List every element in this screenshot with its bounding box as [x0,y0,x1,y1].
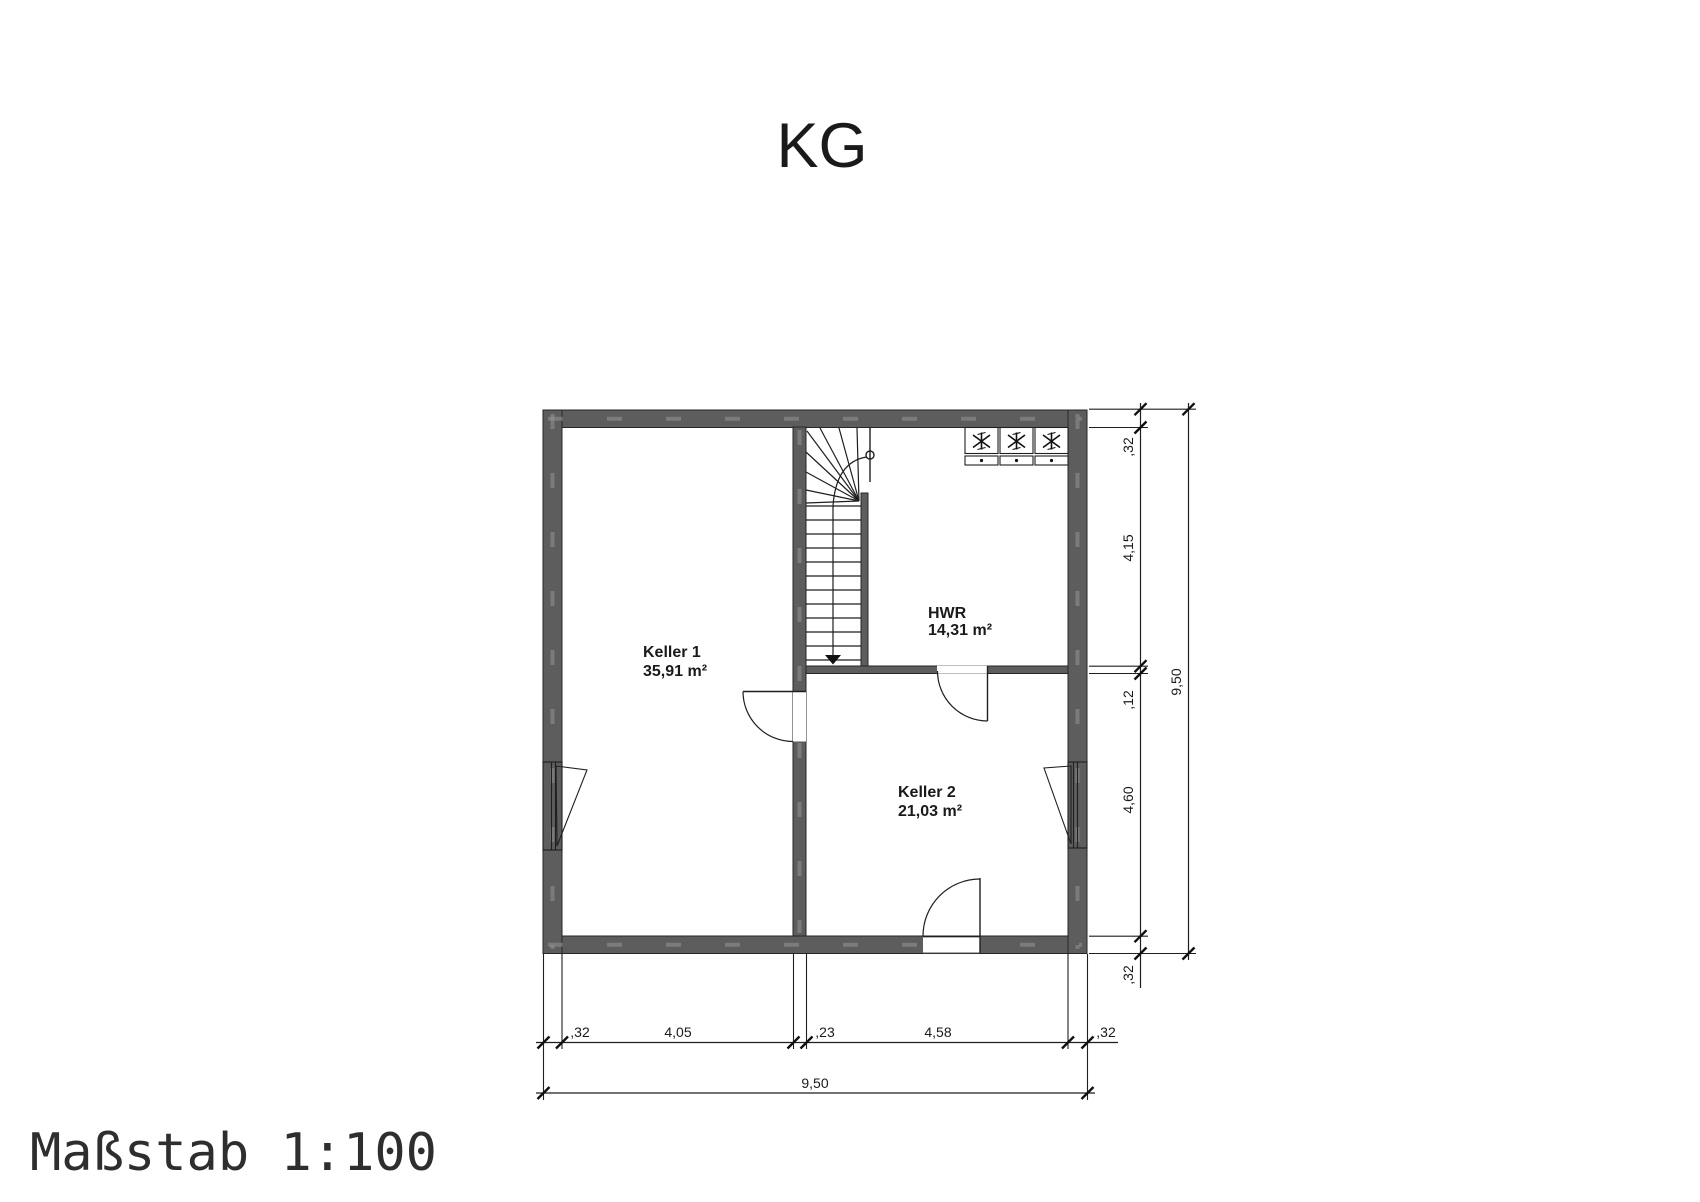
door-swing-arc [923,879,980,936]
wall-left [543,410,562,954]
room-area-keller2: 21,03 m² [898,803,962,820]
window-swing-symbol [1044,766,1071,844]
wall-right [1068,410,1087,954]
room-name-keller2: Keller 2 [898,784,956,801]
dim-label: ,32 [1120,437,1136,457]
dim-label: 4,15 [1120,534,1136,561]
door-hwr-keller2 [937,666,988,721]
door-swing-arc [938,671,988,721]
dim-label: ,23 [815,1024,835,1040]
appliance-icon [1035,428,1068,466]
dim-label: 4,60 [1120,786,1136,813]
dim-label: 4,05 [664,1024,691,1040]
wall-hatch [548,414,1082,949]
door-swing-arc [743,692,793,742]
dimensions-bottom: ,32 4,05 ,23 4,58 ,32 9,50 [536,954,1118,1100]
dim-label: ,32 [1096,1024,1116,1040]
scale-label: Maßstab 1:100 [30,1123,437,1183]
room-name-hwr: HWR [928,605,967,622]
wall-bottom [543,936,1087,954]
room-area-keller1: 35,91 m² [643,663,707,680]
floor-title: KG [776,111,867,181]
dim-label: 4,58 [924,1024,951,1040]
room-area-hwr: 14,31 m² [928,622,992,639]
dim-label: ,32 [1120,965,1136,985]
floorplan-page: KG [0,0,1700,1202]
wall-top [543,410,1087,428]
appliance-icon [965,428,998,466]
wall-stair-side [861,493,868,666]
dimensions-right: ,32 4,15 ,12 4,60 ,32 9,50 [1089,403,1196,988]
dim-label: ,12 [1120,690,1136,710]
appliance-icon [1000,428,1033,466]
appliances [965,428,1068,466]
dim-total-label: 9,50 [1168,668,1184,695]
floorplan-drawing: KG [0,0,1700,1202]
room-name-keller1: Keller 1 [643,644,701,661]
winder-treads [806,428,859,503]
dim-label: ,32 [570,1024,590,1040]
door-exterior-bottom [923,878,980,954]
room-labels: Keller 1 35,91 m² Keller 2 21,03 m² HWR … [643,605,992,820]
dim-total-label: 9,50 [801,1075,828,1091]
door-keller1-keller2 [743,691,806,742]
